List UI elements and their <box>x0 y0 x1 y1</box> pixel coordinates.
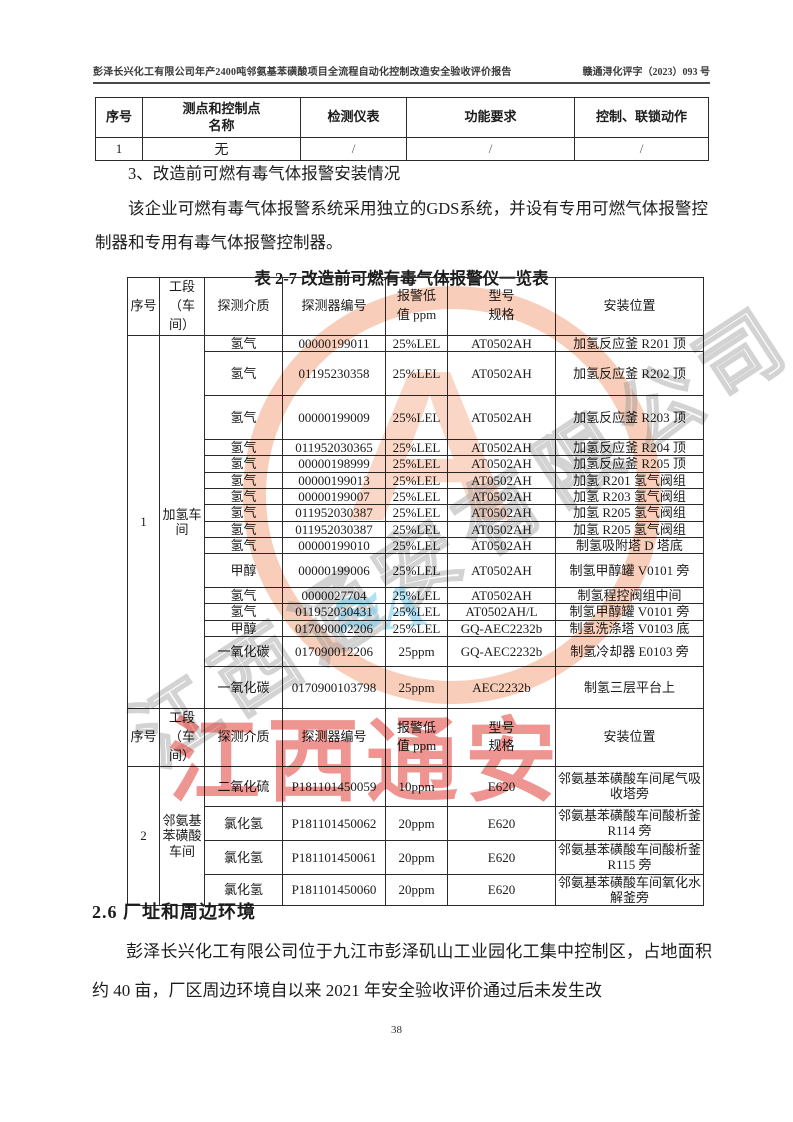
t2-header-location: 安装位置 <box>556 278 704 336</box>
table-row: 氢气0000019900925%LELAT0502AH加氢反应釜 R203 顶 <box>128 395 704 439</box>
t2-header-detector-id: 探测器编号 <box>283 709 386 767</box>
section-2-6-paragraph: 彭泽长兴化工有限公司位于九江市彭泽矶山工业园化工集中控制区，占地面积约 40 亩… <box>92 932 712 1010</box>
t2-cell-alarm-low: 10ppm <box>386 766 448 806</box>
t2-cell-detector-id: 00000199006 <box>283 554 386 588</box>
t2-header-model: 型号 规格 <box>448 278 556 336</box>
t2-cell-alarm-low: 25%LEL <box>386 395 448 439</box>
t2-cell-alarm-low: 25%LEL <box>386 604 448 620</box>
t2-header-medium: 探测介质 <box>205 278 283 336</box>
t2-cell-model: AEC2232b <box>448 667 556 709</box>
t2-cell-medium: 氢气 <box>205 588 283 604</box>
t2-cell-medium: 一氧化碳 <box>205 637 283 667</box>
t2-cell-location: 加氢反应釜 R201 顶 <box>556 335 704 351</box>
t2-cell-medium: 氢气 <box>205 521 283 537</box>
t2-header-location: 安装位置 <box>556 709 704 767</box>
table-row: 甲醇0000019900625%LELAT0502AH制氢甲醇罐 V0101 旁 <box>128 554 704 588</box>
t2-cell-detector-id: 00000199007 <box>283 488 386 504</box>
t2-cell-location: 加氢反应釜 R202 顶 <box>556 351 704 395</box>
t2-cell-location: 邻氨基苯磺酸车间尾气吸收塔旁 <box>556 766 704 806</box>
t1-cell-point-name: 无 <box>143 138 301 161</box>
table-row: 1 无 / / / <box>96 138 709 161</box>
t2-cell-alarm-low: 25%LEL <box>386 335 448 351</box>
t2-cell-alarm-low: 25%LEL <box>386 351 448 395</box>
doc-number: 赣通浔化评字（2023）093 号 <box>583 63 711 78</box>
t2-header-model: 型号 规格 <box>448 709 556 767</box>
t1-header-point-name: 测点和控制点 名称 <box>143 98 301 138</box>
t2-cell-model: E620 <box>448 806 556 840</box>
t2-cell-model: GQ-AEC2232b <box>448 620 556 636</box>
t2-cell-model: AT0502AH <box>448 395 556 439</box>
t2-cell-detector-id: 00000198999 <box>283 456 386 472</box>
table-row: 一氧化碳01709001220625ppmGQ-AEC2232b制氢冷却器 E0… <box>128 637 704 667</box>
t1-header-interlock: 控制、联锁动作 <box>575 98 709 138</box>
section-3-heading: 3、改造前可燃有毒气体报警安装情况 <box>95 160 708 188</box>
t2-cell-location: 制氢洗涤塔 V0103 底 <box>556 620 704 636</box>
t2-cell-alarm-low: 25%LEL <box>386 620 448 636</box>
t2-cell-medium: 氢气 <box>205 505 283 521</box>
table-row: 氢气0000019901025%LELAT0502AH制氢吸附塔 D 塔底 <box>128 537 704 553</box>
document-page: 彭泽长兴化工有限公司年产2400吨邻氨基苯磺酸项目全流程自动化控制改造安全验收评… <box>0 0 793 1122</box>
t2-header-workshop: 工段（车间） <box>160 709 205 767</box>
t2-cell-alarm-low: 25ppm <box>386 637 448 667</box>
t2-cell-detector-id: 011952030387 <box>283 505 386 521</box>
t2-cell-model: E620 <box>448 840 556 874</box>
t2-header-seq: 序号 <box>128 709 160 767</box>
t2-cell-model: AT0502AH/L <box>448 604 556 620</box>
t2-cell-medium: 氢气 <box>205 604 283 620</box>
page-number: 38 <box>0 1024 793 1036</box>
t2-cell-model: E620 <box>448 766 556 806</box>
table-row: 氢气0000019901325%LELAT0502AH加氢 R201 氢气阀组 <box>128 472 704 488</box>
t1-header-instrument: 检测仪表 <box>301 98 407 138</box>
t2-cell-location: 加氢 R205 氢气阀组 <box>556 505 704 521</box>
table-row: 氢气0119523035825%LELAT0502AH加氢反应釜 R202 顶 <box>128 351 704 395</box>
t2-cell-detector-id: 00000199010 <box>283 537 386 553</box>
t2-cell-location: 加氢反应釜 R205 顶 <box>556 456 704 472</box>
t2-header-seq: 序号 <box>128 278 160 336</box>
t2-cell-detector-id: 011952030431 <box>283 604 386 620</box>
t1-header-function: 功能要求 <box>407 98 575 138</box>
t2-cell-medium: 氢气 <box>205 537 283 553</box>
table-header-row: 序号 测点和控制点 名称 检测仪表 功能要求 控制、联锁动作 <box>96 98 709 138</box>
table-header-row: 序号工段（车间）探测介质探测器编号报警低 值 ppm型号 规格安装位置 <box>128 709 704 767</box>
t2-cell-detector-id: 00000199009 <box>283 395 386 439</box>
table-row: 氯化氢P18110145006120ppmE620邻氨基苯磺酸车间酸析釜 R11… <box>128 840 704 874</box>
t2-cell-location: 加氢 R203 氢气阀组 <box>556 488 704 504</box>
t2-cell-model: AT0502AH <box>448 456 556 472</box>
t2-cell-medium: 甲醇 <box>205 620 283 636</box>
table-row: 氢气000002770425%LELAT0502AH制氢程控阀组中间 <box>128 588 704 604</box>
t2-cell-model: AT0502AH <box>448 351 556 395</box>
table-row: 氢气01195203036525%LELAT0502AH加氢反应釜 R204 顶 <box>128 439 704 455</box>
t2-cell-alarm-low: 25%LEL <box>386 439 448 455</box>
t2-cell-model: AT0502AH <box>448 488 556 504</box>
t2-cell-detector-id: 00000199011 <box>283 335 386 351</box>
t2-cell-alarm-low: 25%LEL <box>386 521 448 537</box>
t2-cell-alarm-low: 25%LEL <box>386 588 448 604</box>
t2-cell-workshop: 邻氨基苯磺酸车间 <box>160 766 205 906</box>
t2-cell-medium: 氢气 <box>205 395 283 439</box>
t2-header-detector-id: 探测器编号 <box>283 278 386 336</box>
t2-cell-location: 加氢反应釜 R203 顶 <box>556 395 704 439</box>
t2-cell-model: AT0502AH <box>448 472 556 488</box>
t2-cell-detector-id: 017090012206 <box>283 637 386 667</box>
t2-cell-location: 邻氨基苯磺酸车间酸析釜 R114 旁 <box>556 806 704 840</box>
table-row: 1加氢车间氢气0000019901125%LELAT0502AH加氢反应釜 R2… <box>128 335 704 351</box>
t2-cell-seq: 2 <box>128 766 160 906</box>
t2-cell-location: 邻氨基苯磺酸车间酸析釜 R115 旁 <box>556 840 704 874</box>
t2-header-workshop: 工段（车间） <box>160 278 205 336</box>
t2-cell-medium: 氢气 <box>205 488 283 504</box>
t2-cell-alarm-low: 25%LEL <box>386 537 448 553</box>
table-row: 氢气01195203043125%LELAT0502AH/L制氢甲醇罐 V010… <box>128 604 704 620</box>
t2-cell-location: 制氢冷却器 E0103 旁 <box>556 637 704 667</box>
control-points-table: 序号 测点和控制点 名称 检测仪表 功能要求 控制、联锁动作 1 无 / / / <box>95 97 709 161</box>
t2-cell-detector-id: 011952030365 <box>283 439 386 455</box>
t2-cell-detector-id: P181101450061 <box>283 840 386 874</box>
t2-cell-model: AT0502AH <box>448 505 556 521</box>
t2-cell-model: AT0502AH <box>448 439 556 455</box>
t2-cell-alarm-low: 25%LEL <box>386 554 448 588</box>
t1-cell-seq: 1 <box>96 138 143 161</box>
t2-cell-location: 加氢 R205 氢气阀组 <box>556 521 704 537</box>
t2-cell-detector-id: 00000199013 <box>283 472 386 488</box>
t2-header-alarm-low: 报警低 值 ppm <box>386 278 448 336</box>
t2-cell-detector-id: P181101450062 <box>283 806 386 840</box>
t2-cell-model: AT0502AH <box>448 537 556 553</box>
t2-cell-medium: 氯化氢 <box>205 840 283 874</box>
t2-cell-detector-id: P181101450059 <box>283 766 386 806</box>
t2-cell-alarm-low: 25ppm <box>386 667 448 709</box>
page-header: 彭泽长兴化工有限公司年产2400吨邻氨基苯磺酸项目全流程自动化控制改造安全验收评… <box>93 62 710 84</box>
t2-cell-medium: 二氧化硫 <box>205 766 283 806</box>
t2-cell-detector-id: 01195230358 <box>283 351 386 395</box>
table-row: 氢气01195203038725%LELAT0502AH加氢 R205 氢气阀组 <box>128 505 704 521</box>
t2-cell-medium: 氢气 <box>205 439 283 455</box>
table-row: 氢气01195203038725%LELAT0502AH加氢 R205 氢气阀组 <box>128 521 704 537</box>
t2-cell-location: 制氢吸附塔 D 塔底 <box>556 537 704 553</box>
section-2-6-block: 2.6 厂址和周边环境 彭泽长兴化工有限公司位于九江市彭泽矶山工业园化工集中控制… <box>92 898 712 1010</box>
section-3-paragraph: 该企业可燃有毒气体报警系统采用独立的GDS系统，并设有专用可燃气体报警控制器和专… <box>95 192 708 260</box>
section-2-6-heading: 2.6 厂址和周边环境 <box>92 898 712 924</box>
t2-cell-medium: 一氧化碳 <box>205 667 283 709</box>
t2-header-alarm-low: 报警低 值 ppm <box>386 709 448 767</box>
t2-cell-model: GQ-AEC2232b <box>448 637 556 667</box>
t2-cell-medium: 氢气 <box>205 456 283 472</box>
table-row: 2邻氨基苯磺酸车间二氧化硫P18110145005910ppmE620邻氨基苯磺… <box>128 766 704 806</box>
t2-cell-medium: 氢气 <box>205 472 283 488</box>
t1-header-seq: 序号 <box>96 98 143 138</box>
t1-cell-interlock: / <box>575 138 709 161</box>
t1-cell-instrument: / <box>301 138 407 161</box>
t2-cell-medium: 甲醇 <box>205 554 283 588</box>
t2-cell-detector-id: 011952030387 <box>283 521 386 537</box>
t2-cell-seq: 1 <box>128 335 160 709</box>
t2-cell-location: 制氢程控阀组中间 <box>556 588 704 604</box>
t2-cell-detector-id: 0170900103798 <box>283 667 386 709</box>
t1-cell-function: / <box>407 138 575 161</box>
t2-cell-medium: 氢气 <box>205 351 283 395</box>
t2-cell-medium: 氯化氢 <box>205 806 283 840</box>
t2-cell-location: 加氢反应釜 R204 顶 <box>556 439 704 455</box>
t2-header-medium: 探测介质 <box>205 709 283 767</box>
table-header-row: 序号工段（车间）探测介质探测器编号报警低 值 ppm型号 规格安装位置 <box>128 278 704 336</box>
t2-cell-model: AT0502AH <box>448 554 556 588</box>
t2-cell-model: AT0502AH <box>448 335 556 351</box>
t2-cell-alarm-low: 25%LEL <box>386 456 448 472</box>
table-row: 一氧化碳017090010379825ppmAEC2232b制氢三层平台上 <box>128 667 704 709</box>
t2-cell-location: 加氢 R201 氢气阀组 <box>556 472 704 488</box>
section-3-block: 3、改造前可燃有毒气体报警安装情况 该企业可燃有毒气体报警系统采用独立的GDS系… <box>95 160 708 291</box>
t2-cell-location: 制氢甲醇罐 V0101 旁 <box>556 554 704 588</box>
table-row: 氢气0000019899925%LELAT0502AH加氢反应釜 R205 顶 <box>128 456 704 472</box>
t2-cell-location: 制氢三层平台上 <box>556 667 704 709</box>
t2-cell-medium: 氢气 <box>205 335 283 351</box>
t2-cell-alarm-low: 20ppm <box>386 806 448 840</box>
t2-cell-alarm-low: 20ppm <box>386 840 448 874</box>
table-row: 氢气0000019900725%LELAT0502AH加氢 R203 氢气阀组 <box>128 488 704 504</box>
table-row: 氯化氢P18110145006220ppmE620邻氨基苯磺酸车间酸析釜 R11… <box>128 806 704 840</box>
t2-cell-location: 制氢甲醇罐 V0101 旁 <box>556 604 704 620</box>
t2-cell-detector-id: 0000027704 <box>283 588 386 604</box>
t2-cell-model: AT0502AH <box>448 521 556 537</box>
t2-cell-workshop: 加氢车间 <box>160 335 205 709</box>
gas-detectors-table: 序号工段（车间）探测介质探测器编号报警低 值 ppm型号 规格安装位置1加氢车间… <box>127 277 704 906</box>
t2-cell-alarm-low: 25%LEL <box>386 472 448 488</box>
t2-cell-detector-id: 017090002206 <box>283 620 386 636</box>
table-row: 甲醇01709000220625%LELGQ-AEC2232b制氢洗涤塔 V01… <box>128 620 704 636</box>
t2-cell-model: AT0502AH <box>448 588 556 604</box>
t2-cell-alarm-low: 25%LEL <box>386 488 448 504</box>
t2-cell-alarm-low: 25%LEL <box>386 505 448 521</box>
report-title: 彭泽长兴化工有限公司年产2400吨邻氨基苯磺酸项目全流程自动化控制改造安全验收评… <box>93 63 512 78</box>
